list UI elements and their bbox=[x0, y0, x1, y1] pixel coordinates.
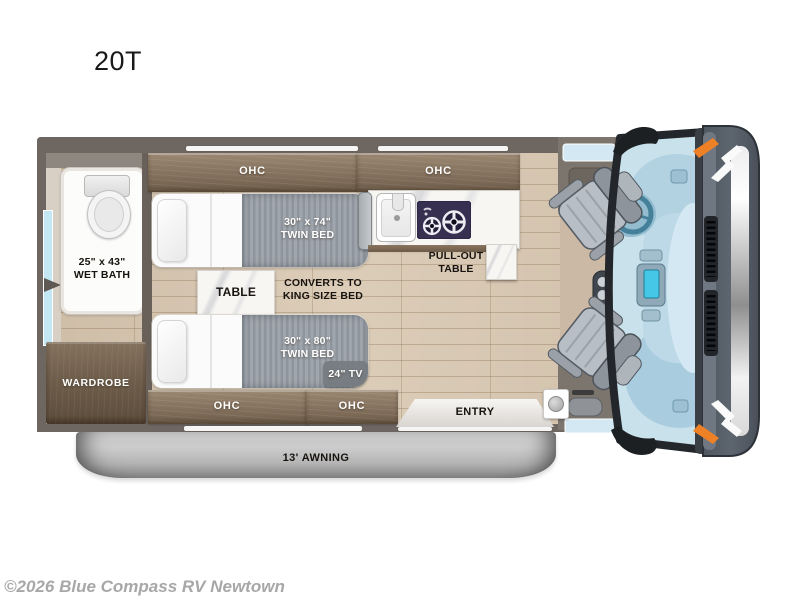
pillow-icon bbox=[157, 199, 187, 262]
ohc-cabinet-bottom-right: OHC bbox=[306, 390, 398, 424]
cooktop-icon bbox=[417, 201, 471, 239]
window-strip bbox=[186, 146, 358, 151]
twin-bed-bottom-label: 30" x 80" TWIN BED bbox=[247, 335, 368, 361]
king-conversion-label: CONVERTS TO KING SIZE BED bbox=[276, 277, 370, 303]
king-line2-text: KING SIZE BED bbox=[276, 290, 370, 303]
ohc-bottom-left-label: OHC bbox=[148, 400, 306, 413]
twin-bed-bottom-name-text: TWIN BED bbox=[247, 348, 368, 361]
ohc-cabinet-top-kitchen: OHC bbox=[357, 153, 520, 192]
twin-bed-top-size-text: 30" x 74" bbox=[247, 216, 368, 229]
twin-bed-bottom-size-text: 30" x 80" bbox=[247, 335, 368, 348]
twin-bed-top: 30" x 74" TWIN BED bbox=[152, 194, 368, 267]
pullout-line2-text: TABLE bbox=[417, 263, 495, 276]
pull-out-table-label: PULL-OUT TABLE bbox=[417, 250, 495, 276]
sink-icon bbox=[376, 193, 416, 242]
awning: 13' AWNING bbox=[76, 432, 556, 478]
wet-bath-size-text: 25" x 43" bbox=[58, 256, 146, 269]
porch-light-lens bbox=[548, 396, 564, 412]
entry-label: ENTRY bbox=[396, 406, 554, 419]
bed-linen bbox=[152, 315, 242, 388]
tv-partition bbox=[358, 192, 372, 250]
bath-ledge bbox=[46, 153, 146, 168]
ohc-cabinet-bottom-left: OHC bbox=[148, 390, 308, 424]
wet-bath-label: 25" x 43" WET BATH bbox=[58, 256, 146, 282]
table-label: TABLE bbox=[216, 286, 256, 299]
ohc-cabinet-top-left: OHC bbox=[148, 153, 359, 192]
tv-badge: 24" TV bbox=[323, 361, 368, 387]
porch-light-icon bbox=[543, 389, 569, 419]
wardrobe-label: WARDROBE bbox=[46, 377, 146, 390]
window-strip bbox=[378, 146, 508, 151]
pullout-line1-text: PULL-OUT bbox=[417, 250, 495, 263]
sheet-fold bbox=[210, 315, 212, 388]
king-line1-text: CONVERTS TO bbox=[276, 277, 370, 290]
faucet-icon bbox=[392, 193, 404, 211]
pillow-icon bbox=[157, 320, 187, 383]
twin-bed-top-name-text: TWIN BED bbox=[247, 229, 368, 242]
entry-step: ENTRY bbox=[396, 399, 554, 427]
dinette-table: TABLE bbox=[197, 270, 275, 315]
wardrobe-cabinet: WARDROBE bbox=[46, 342, 146, 424]
ohc-bottom-right-label: OHC bbox=[306, 400, 398, 413]
bumper-stripe bbox=[731, 146, 749, 436]
ohc-top-kitchen-label: OHC bbox=[357, 165, 520, 178]
van-front-body bbox=[693, 126, 759, 456]
bed-linen bbox=[152, 194, 242, 267]
copyright-watermark: ©2026 Blue Compass RV Newtown bbox=[4, 577, 285, 597]
window-strip bbox=[184, 426, 362, 431]
tv-label: 24" TV bbox=[328, 368, 362, 381]
ohc-top-left-label: OHC bbox=[148, 165, 357, 178]
twin-bed-top-label: 30" x 74" TWIN BED bbox=[247, 216, 368, 242]
toilet-seat-icon bbox=[94, 197, 124, 232]
wet-bath-name-text: WET BATH bbox=[58, 269, 146, 282]
floorplan-page: 20T 25" x 43" WET BATH WARDROBE OHC OHC … bbox=[0, 0, 800, 600]
sink-drain bbox=[394, 215, 400, 221]
sheet-fold bbox=[210, 194, 212, 267]
model-title: 20T bbox=[94, 46, 142, 77]
awning-label: 13' AWNING bbox=[76, 452, 556, 465]
infotainment-screen bbox=[644, 270, 659, 298]
